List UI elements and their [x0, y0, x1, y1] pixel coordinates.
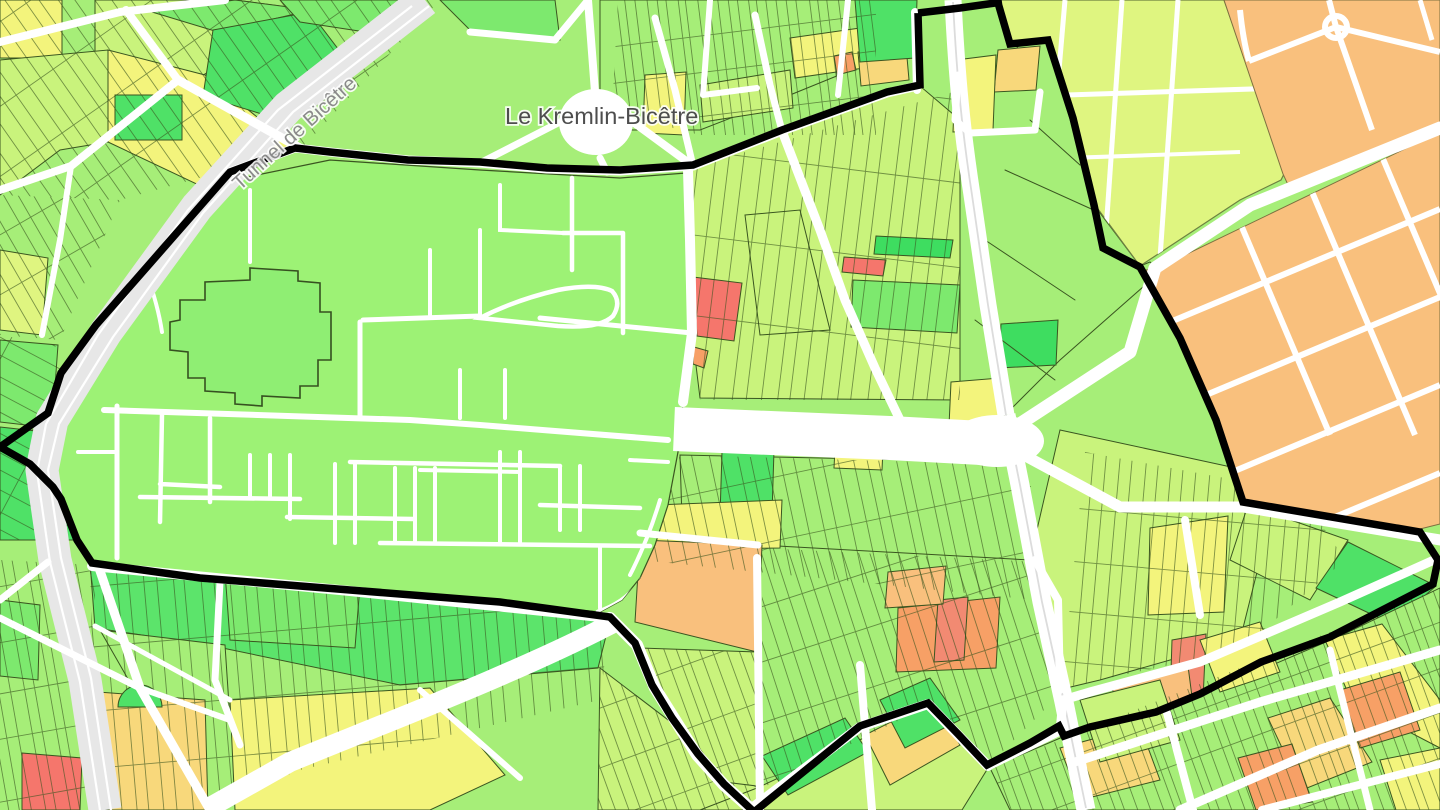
svg-text:Le Kremlin-Bicêtre: Le Kremlin-Bicêtre: [505, 103, 698, 129]
